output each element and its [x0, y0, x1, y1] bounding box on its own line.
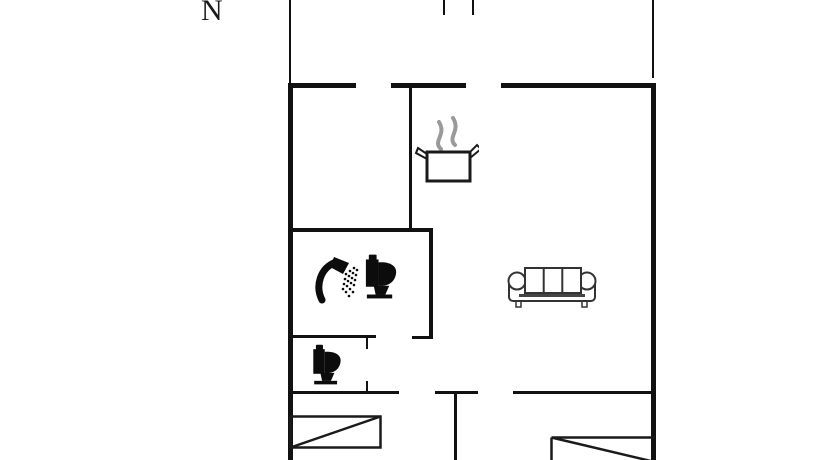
- top-stub-right: [472, 0, 474, 15]
- hall-wall-seg-1: [288, 391, 399, 394]
- bathroom-top-wall: [288, 228, 433, 232]
- steam-wisp-right: [452, 118, 455, 145]
- north-indicator-label: N: [201, 0, 223, 28]
- top-wall-seg-1: [288, 83, 356, 88]
- wc-door-jamb-top: [366, 338, 368, 349]
- steam-wisp-left: [438, 122, 441, 149]
- kitchen-area: [293, 88, 409, 228]
- hall-wall-seg-3: [513, 391, 653, 394]
- bathroom-right-wall: [429, 228, 433, 339]
- floor-plan-canvas: N: [0, 0, 834, 460]
- bedroom-divider-wall: [454, 394, 457, 460]
- shower-icon: [312, 254, 362, 304]
- bed-icon: [289, 415, 382, 449]
- toilet-icon: [308, 343, 345, 387]
- right-wall: [651, 83, 656, 460]
- left-wall-upper-thin: [289, 0, 291, 84]
- top-wall-seg-2: [391, 83, 466, 88]
- right-wall-upper-thin: [652, 0, 654, 78]
- bed-icon: [550, 436, 655, 460]
- top-wall-seg-3: [501, 83, 656, 88]
- bathroom-bottom-wall-left: [288, 335, 376, 338]
- wc-door-jamb-bottom: [366, 381, 368, 391]
- top-stub-left: [443, 0, 445, 15]
- sofa-icon: [506, 264, 598, 309]
- kitchen-partition-wall: [409, 88, 412, 230]
- stove-pot-icon: [413, 112, 479, 184]
- bathroom-bottom-wall-right: [412, 336, 433, 339]
- toilet-icon: [362, 252, 399, 302]
- left-wall: [288, 83, 293, 460]
